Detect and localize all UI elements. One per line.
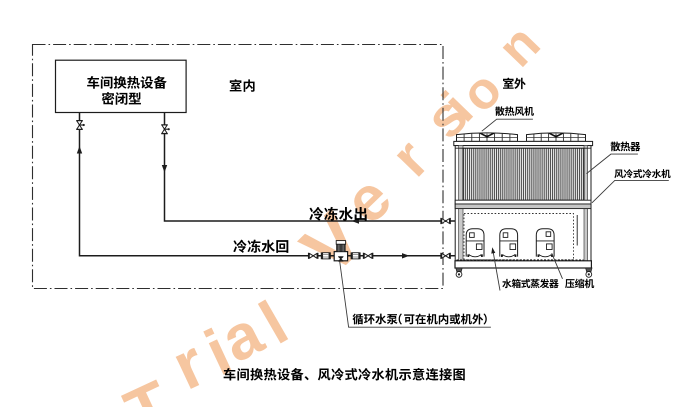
svg-text:T: T — [114, 366, 182, 407]
svg-text:n: n — [487, 14, 552, 78]
svg-text:r: r — [379, 127, 441, 188]
